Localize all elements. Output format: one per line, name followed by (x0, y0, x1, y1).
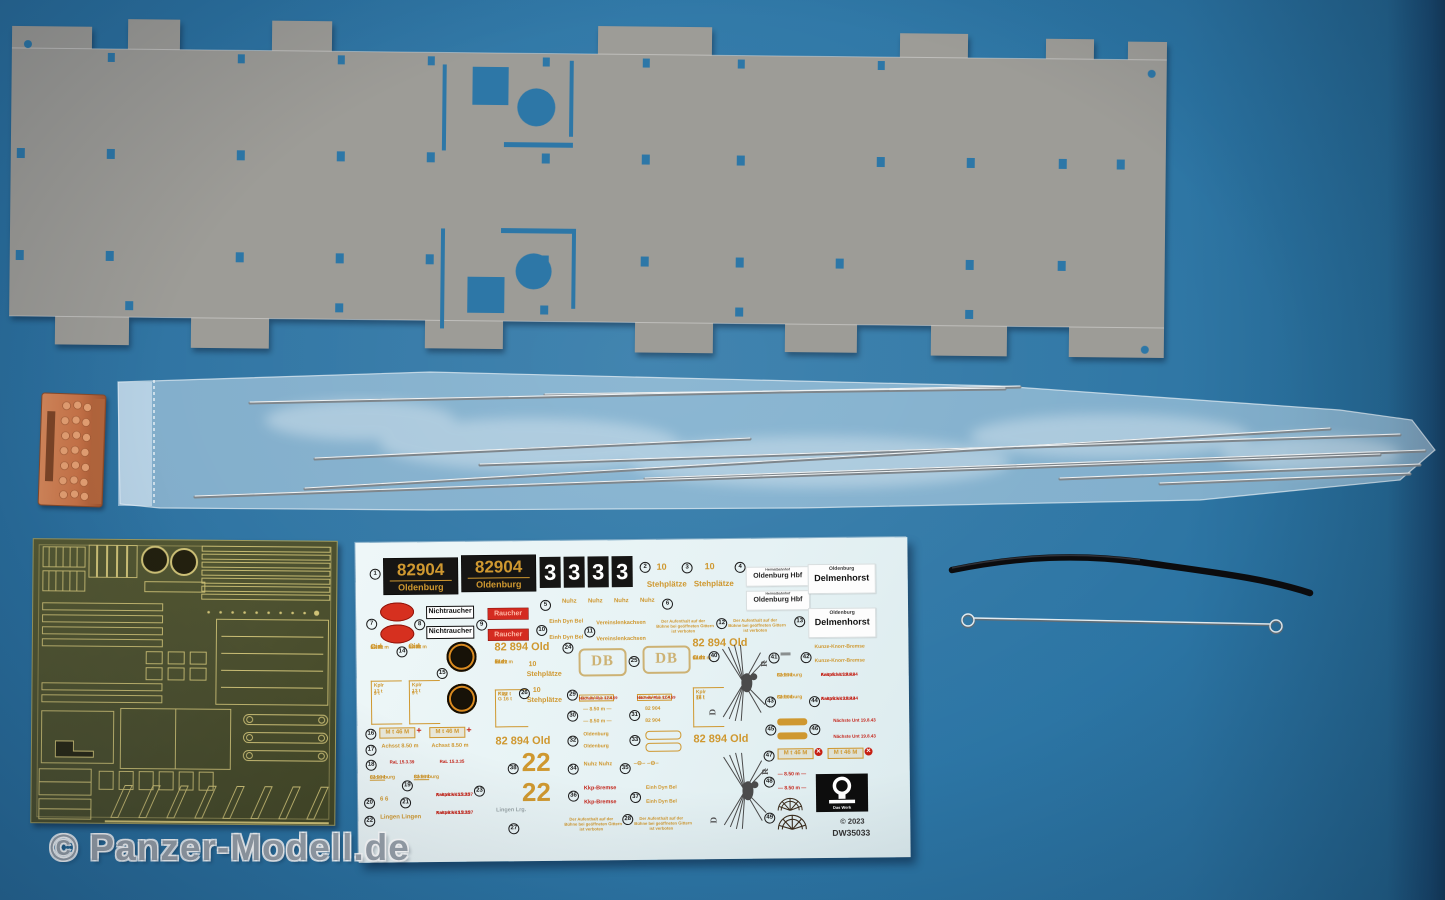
stehplaetze-label: Stehplätze (647, 579, 687, 588)
nuhz-label: Nuhz (562, 599, 577, 605)
steel-eye-wire (962, 614, 1282, 633)
capacity-number: 10 (657, 562, 667, 572)
einh-dyn-bel: Einh Dyn Bel (549, 619, 583, 625)
fan-decal (776, 813, 808, 830)
route-to: Delmenhorst (809, 616, 875, 628)
warn-l3: ist verboten (671, 629, 695, 634)
next-unt: Nächste Unt 19.8.43 (833, 717, 876, 722)
marker: 13 (794, 616, 805, 627)
marker: 46 (809, 724, 820, 735)
marker: 11 (584, 626, 595, 637)
running-number: 82 904 (645, 718, 660, 724)
marker: 28 (622, 814, 633, 825)
marker: 49 (764, 813, 775, 824)
rev-date: RaL 15.3.39 (390, 759, 415, 764)
watermark: © Panzer-Modell.de (50, 826, 410, 870)
stehplaetze-label: Stehplätze (527, 697, 562, 704)
achsstand: Achsst 8.50 m (381, 743, 418, 749)
plate-number: 82904 (390, 560, 452, 582)
gold-pill-badge (777, 718, 807, 725)
red-cross-circle: ✕ (865, 747, 873, 755)
home-station-name: Oldenburg Hbf (747, 571, 809, 581)
red-plus: + (466, 725, 471, 735)
decal-sheet: 1 82904 Oldenburg 82904 Oldenburg 3 3 3 … (355, 537, 910, 863)
raucher-sign: Raucher (488, 608, 528, 619)
vereinslenkachsen: Vereinslenkachsen (596, 636, 646, 643)
marker: 3 (682, 562, 693, 573)
marker: 43 (765, 697, 776, 708)
marker: 15 (437, 668, 448, 679)
home-station-box: Heimatbahnhof Oldenburg Hbf (746, 590, 810, 611)
mt46-badge: M t 46 M (828, 748, 864, 759)
kkp-bremse: Kkp-Bremse (584, 785, 616, 791)
lingen-pair: Lingen Lingen (380, 814, 421, 820)
length-mark: — 8.50 m — (583, 706, 611, 712)
warning-text: Der Aufenthalt auf der Bühne bei geöffne… (634, 815, 688, 831)
eagle-letter-r: R (759, 660, 769, 667)
marker: 5 (540, 600, 551, 611)
plate-number: 82904 (468, 557, 530, 579)
wire-parts (930, 548, 1445, 643)
db-logo: DB (578, 648, 626, 677)
nichtraucher-sign: Nichtraucher (426, 626, 474, 640)
load-table: Kplr13 t9 t (409, 680, 440, 724)
marker: 24 (562, 643, 573, 654)
wagon-number: 82 894 Old (693, 733, 748, 746)
marker: 35 (620, 763, 631, 774)
digit-plate: 3 (539, 557, 560, 588)
marker: 30 (567, 711, 578, 722)
rev-date: RaL 15.3.35 (440, 759, 465, 764)
capacity-number: 10 (529, 661, 537, 668)
big-two: 22 (522, 777, 551, 808)
das-werk-logo: Das Werk (816, 774, 868, 813)
laser-cut-cardboard-sheet (0, 0, 1445, 385)
plate-name: Oldenburg (384, 581, 458, 594)
achsstand: Achsst 8.50 m (431, 743, 468, 749)
marker: 2 (640, 562, 651, 573)
red-oval-decal (380, 624, 414, 643)
loco-number-plate: 82904 Oldenburg (384, 558, 458, 595)
mt46-badge: M t 46 M (778, 748, 814, 759)
red-cross-circle: ✕ (815, 748, 823, 756)
marker: 18 (366, 760, 377, 771)
marker: 48 (764, 777, 775, 788)
marker: 7 (366, 619, 377, 630)
next-unt: Nächste Unt 19.8.43 (833, 733, 876, 738)
nuhz-pair: Nuhz Nuhz (584, 761, 612, 767)
eagle-letter-r: R (760, 768, 770, 775)
grey-tick-decal (781, 652, 791, 655)
capacity-number: 10 (533, 687, 541, 694)
gold-pill-badge (777, 732, 807, 739)
red-plus: + (416, 725, 421, 735)
einh-dyn-bel: Einh Dyn Bel (646, 799, 677, 805)
load-table: Kplr22 t16 t (693, 687, 724, 727)
product-code: DW35033 (832, 828, 870, 838)
marker: 14 (396, 646, 407, 657)
big-two: 22 (521, 747, 550, 778)
route-board: Oldenburg Delmenhorst (808, 607, 876, 638)
einh-dyn-bel: Einh Dyn Bel (549, 635, 583, 641)
nuhz-label: Nuhz (614, 598, 629, 604)
stehplaetze-label: Stehplätze (694, 579, 734, 588)
kunze-knorr: Kunze-Knorr-Bremse (814, 644, 864, 651)
marker: 21 (400, 797, 411, 808)
marker: 17 (365, 745, 376, 756)
warn-l3: ist verboten (649, 826, 673, 831)
marker: 32 (567, 736, 578, 747)
marker: 27 (508, 823, 519, 834)
marker: 4 (735, 562, 746, 573)
marker: 9 (476, 620, 487, 631)
warning-text: Der Aufenthalt auf der Bühne bei geöffne… (656, 618, 710, 634)
mt46-badge: M t 46 M (429, 727, 465, 738)
marker: 36 (568, 791, 579, 802)
marker: 38 (508, 763, 519, 774)
capacity-number: 10 (705, 561, 715, 571)
nuhz-label: Nuhz (640, 598, 655, 604)
wagon-number: 82 894 Old (494, 641, 549, 654)
mt46-badge: M t 46 M (379, 727, 415, 738)
marker: 42 (801, 652, 812, 663)
marker: 10 (536, 625, 547, 636)
marker: 20 (364, 798, 375, 809)
warn-l3: ist verboten (579, 827, 603, 832)
copyright-year: © 2023 (840, 817, 864, 826)
length-mark: — 8.50 m — (583, 718, 611, 724)
marker: 41 (769, 652, 780, 663)
loco-number-plate: 82904 Oldenburg (461, 555, 535, 592)
route-board: Oldenburg Delmenhorst (808, 563, 876, 594)
das-werk-text: Das Werk (816, 805, 868, 811)
home-station-box: Heimatbahnhof Oldenburg Hbf (746, 566, 810, 587)
marker: 31 (629, 710, 640, 721)
bag-of-steel-rods (100, 358, 1445, 528)
nichtraucher-sign: Nichtraucher (426, 606, 474, 620)
route-to: Delmenhorst (809, 572, 875, 584)
length-mark-red: — 8.50 m — (778, 785, 806, 791)
eagle-letter-d: D (707, 709, 717, 716)
vereinslenkachsen: Vereinslenkachsen (596, 620, 646, 627)
copper-body (38, 393, 106, 507)
load-table: Kplr13 t9 t (371, 680, 402, 724)
marker: 1 (370, 569, 381, 580)
marker: 45 (765, 725, 776, 736)
six-pair: 6 6 (380, 797, 388, 803)
warn-l3: ist verboten (743, 628, 767, 633)
stehplaetze-label: Stehplätze (527, 671, 562, 678)
brass-photo-etch-fret (25, 533, 346, 834)
pill-decal (645, 742, 681, 751)
reichsadler-eagle (720, 643, 767, 723)
reichsadler-eagle (722, 751, 769, 831)
length-mark-red: — 8.50 m — (778, 771, 806, 777)
marker: 23 (474, 786, 485, 797)
einh-dyn-bel: Einh Dyn Bel (646, 785, 677, 791)
marker: 33 (629, 735, 640, 746)
warning-text: Der Aufenthalt auf der Bühne bei geöffne… (728, 617, 782, 633)
photo-of-model-kit-contents: 1 82904 Oldenburg 82904 Oldenburg 3 3 3 … (0, 0, 1445, 900)
marker: 12 (716, 618, 727, 629)
axle-symbols: –⊖– –⊖– (634, 760, 659, 767)
marker: 34 (568, 764, 579, 775)
station-name: Oldenburg (583, 743, 608, 749)
running-number: 82 904 (645, 706, 660, 712)
wagon-number: 82 894 Old (495, 735, 550, 748)
marker: 29 (567, 690, 578, 701)
marker: 19 (402, 780, 413, 791)
marker: 44 (809, 696, 820, 707)
marker: 6 (662, 599, 673, 610)
warning-text: Der Aufenthalt auf der Bühne bei geöffne… (564, 816, 618, 832)
plate-name: Oldenburg (462, 578, 536, 591)
lingen-grey: Lingen Lrg. (496, 807, 526, 813)
digit-plate: 3 (587, 556, 608, 587)
digit-plate: 3 (611, 556, 632, 587)
fan-decal (776, 796, 804, 811)
red-oval-decal (380, 602, 414, 621)
home-station-name: Oldenburg Hbf (747, 595, 809, 605)
cardboard-body (9, 18, 1167, 358)
next-rev: Nächste Rev 12.4.59 (579, 695, 618, 700)
marker: 25 (629, 656, 640, 667)
next-rev: Nächste Rev 12.4.59 (637, 695, 676, 700)
marker: 40 (708, 651, 719, 662)
kunze-knorr: Kunze-Knorr-Bremse (815, 658, 865, 665)
reichsbahn-roundel (446, 642, 476, 672)
marker: 37 (630, 792, 641, 803)
pill-decal (645, 730, 681, 739)
eagle-letter-d: D (708, 817, 718, 824)
black-flexible-tube (952, 557, 1310, 593)
kkp-bremse: Kkp-Bremse (584, 799, 616, 805)
nuhz-label: Nuhz (588, 598, 603, 604)
marker: 16 (365, 729, 376, 740)
db-logo: DB (642, 645, 690, 674)
digit-plate: 3 (563, 557, 584, 588)
reichsbahn-roundel (447, 684, 477, 714)
raucher-sign: Raucher (488, 629, 528, 640)
marker: 8 (414, 619, 425, 630)
station-name: Oldenburg (583, 731, 608, 737)
